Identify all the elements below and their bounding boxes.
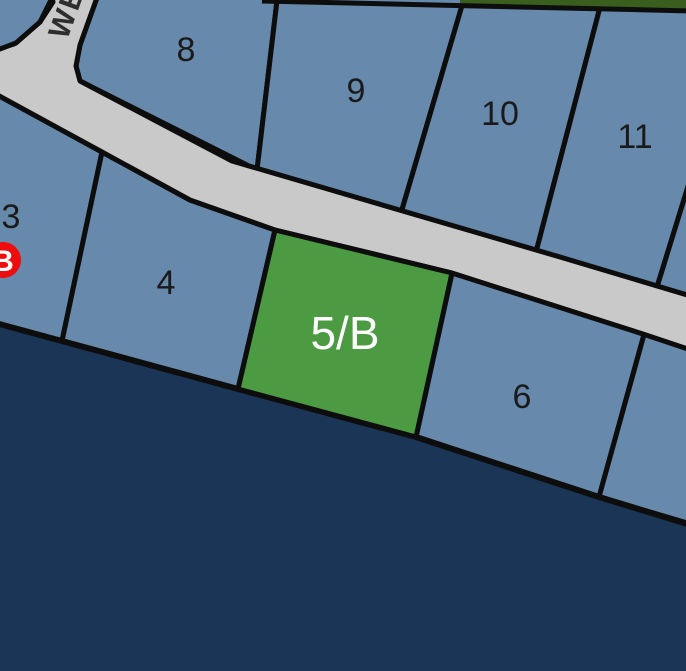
map-marker-label: B — [0, 245, 14, 278]
parcel-9-label: 9 — [347, 72, 366, 110]
parcel-8-label: 8 — [177, 31, 196, 69]
parcel-5b-label: 5/B — [310, 307, 379, 359]
parcel-4-label: 4 — [157, 264, 176, 302]
parcel-map: 8 9 10 11 3 4 6 5/B WE B — [0, 0, 686, 671]
parcel-10-label: 10 — [481, 95, 519, 133]
parcel-6-label: 6 — [513, 378, 532, 416]
parcel-11-label: 11 — [617, 118, 652, 156]
parcel-3-label: 3 — [2, 198, 21, 236]
parcel-map-canvas: 8 9 10 11 3 4 6 5/B WE B — [0, 0, 686, 671]
